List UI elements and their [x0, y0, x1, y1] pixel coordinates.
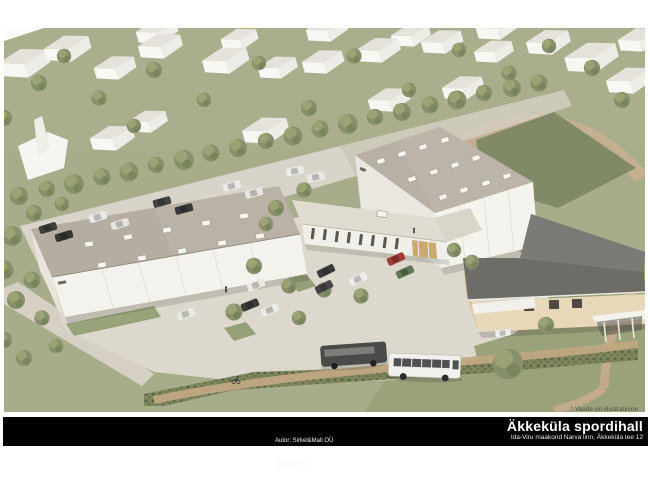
entrance: [412, 240, 437, 259]
disclaimer-note: * Vaade on illustratiivne: [571, 407, 638, 413]
title-block: Autor: Sirkel&Mall OÜ Leht: Leht 1 Äkkek…: [3, 417, 648, 446]
author-sheet-block: Autor: Sirkel&Mall OÜ Leht: Leht 1: [275, 421, 333, 485]
sheet-line: Leht: Leht 1: [275, 461, 333, 469]
drawing-sheet: * Vaade on illustratiivne Autor: Sirkel&…: [0, 0, 650, 487]
aerial-rendering: [4, 28, 645, 412]
author-line: Autor: Sirkel&Mall OÜ: [275, 437, 333, 445]
aerial-rendering-svg: [4, 28, 645, 412]
project-block: Äkkeküla spordihall Ida-Viru maakond Nar…: [507, 418, 643, 441]
bus-white: [386, 353, 463, 384]
project-title: Äkkeküla spordihall: [507, 418, 643, 434]
project-address: Ida-Viru maakond Narva linn, Äkkeküla te…: [507, 434, 643, 441]
